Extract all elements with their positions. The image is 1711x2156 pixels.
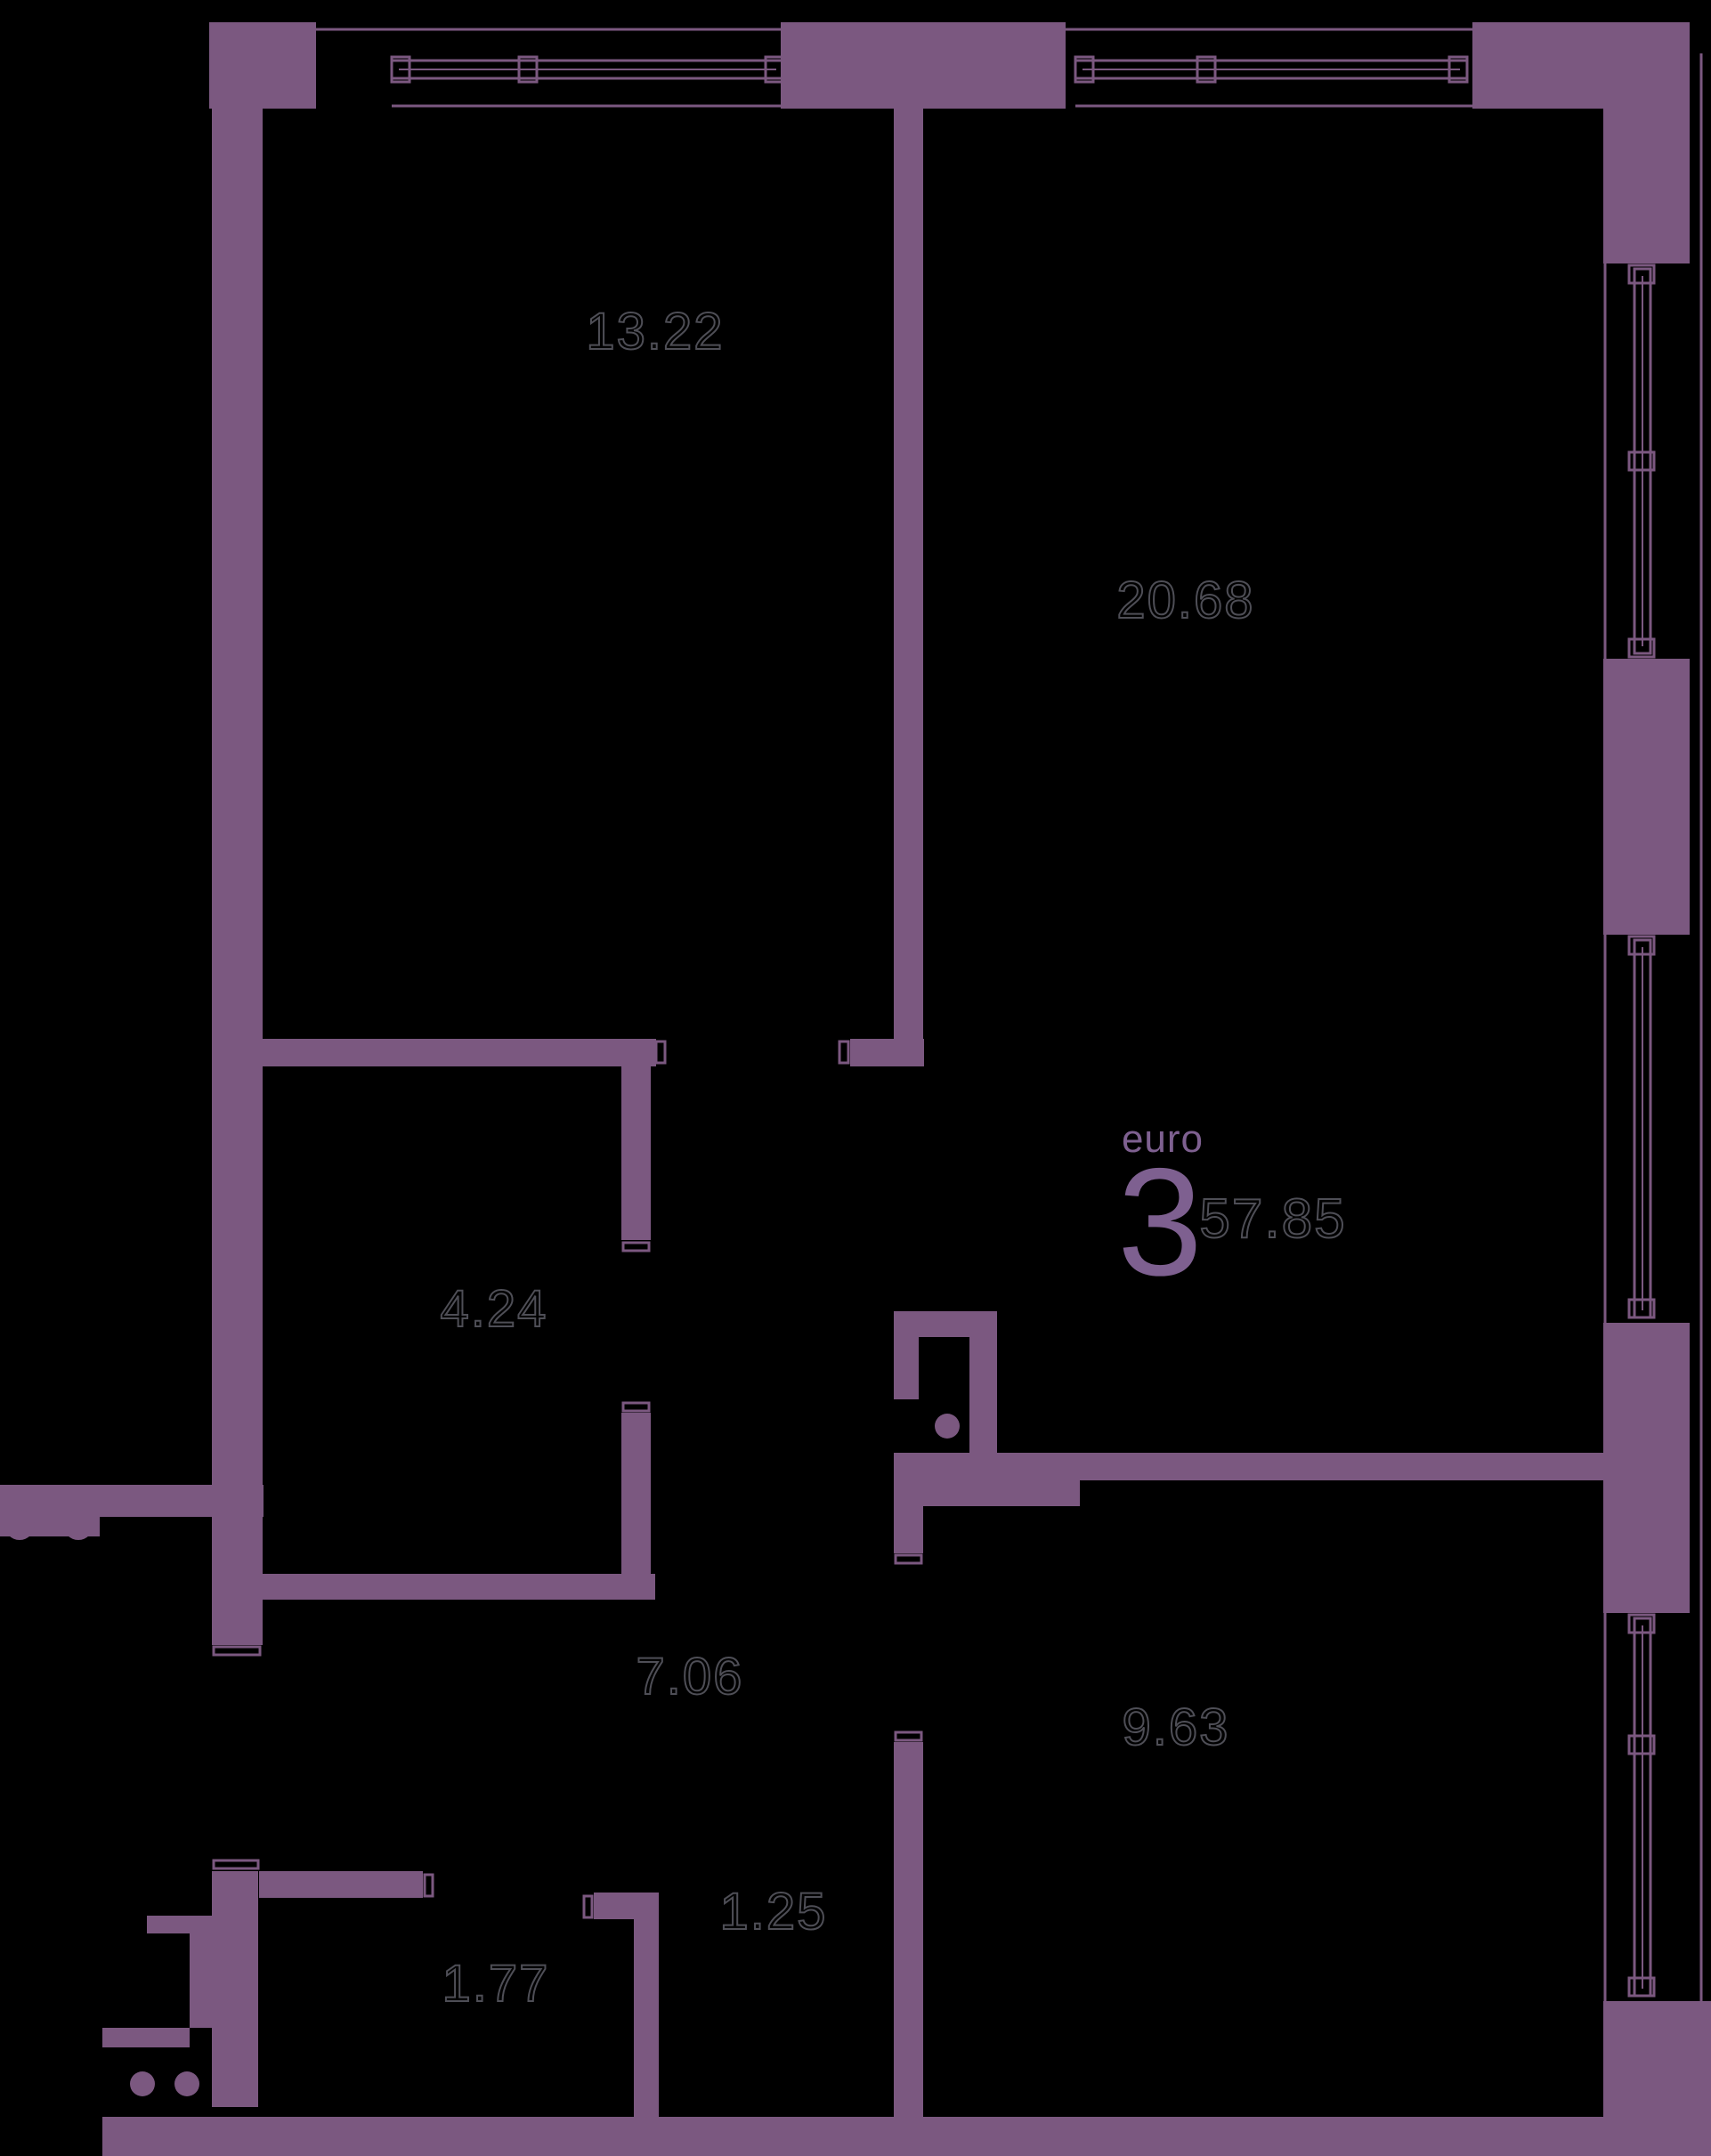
room-area-label-bathroom: 4.24 [441, 1280, 548, 1338]
wall-wardrobe-right [634, 1919, 659, 2117]
door-jamb [584, 1896, 592, 1917]
wall-hall-kitchen-lower [894, 1742, 923, 2117]
window-top-living [1066, 29, 1472, 106]
room-area-label-wardrobe: 1.77 [442, 1955, 550, 2013]
wall-segment [209, 22, 316, 109]
wall-wardrobe-top-left [259, 1871, 423, 1898]
wall-kitchen-niche-top [0, 1485, 264, 1517]
wall-living-kitchen-right [1080, 1453, 1603, 1480]
stove-burner-icon [63, 1510, 93, 1540]
wall-hall-kitchen-stub [894, 1506, 923, 1553]
counter-segment [102, 2028, 190, 2047]
door-openings [214, 1042, 921, 1917]
wall-wardrobe-top-right [594, 1893, 659, 1919]
stove-burner-icon [130, 2071, 155, 2096]
wall-segment-left-lower [212, 1871, 258, 2107]
door-jamb [839, 1042, 848, 1063]
door-jamb [896, 1555, 921, 1563]
toilet-icon [935, 1414, 960, 1439]
wall-pier-right [1603, 659, 1690, 935]
door-jamb [214, 1647, 260, 1655]
shaft-wall-right [969, 1337, 997, 1454]
window-right-lower [1605, 1613, 1654, 2001]
wall-segment-bottom [102, 2117, 1711, 2156]
window-right-middle [1605, 935, 1654, 1323]
wall-bathroom-right-lower [621, 1413, 651, 1600]
shaft-wall-top [894, 1311, 997, 1337]
wall-bedroom-hall [212, 1039, 656, 1066]
unit-total-area: 57.85 [1199, 1188, 1346, 1250]
floor-plan: 13.22 20.68 4.24 7.06 9.63 1.77 1.25 eur… [0, 0, 1711, 2156]
kitchen-fixtures [0, 1510, 214, 2096]
wall-pier-right [1603, 109, 1690, 263]
wall-living-kitchen-left [894, 1453, 1080, 1506]
room-area-label-bedroom: 13.22 [586, 303, 724, 361]
wall-segment [781, 22, 1066, 109]
door-jamb [656, 1042, 665, 1063]
wall-segment-left [212, 109, 263, 1645]
unit-badge: euro 3 57.85 [1117, 1117, 1346, 1308]
wall-segment [1472, 22, 1690, 109]
window-top-bedroom [316, 29, 783, 106]
wall-bedroom-hall-stub [850, 1039, 924, 1066]
shaft-block [894, 1311, 997, 1454]
door-jamb [623, 1243, 649, 1251]
door-jamb [896, 1732, 921, 1740]
stove-burner-icon [174, 2071, 199, 2096]
unit-room-count: 3 [1117, 1137, 1203, 1308]
shaft-wall-left [894, 1337, 919, 1399]
stove-burner-icon [4, 1510, 35, 1540]
wall-bathroom-bottom [259, 1574, 655, 1600]
wall-bedroom-living [894, 109, 923, 1066]
window-right-upper [1605, 263, 1654, 659]
door-jamb [425, 1875, 433, 1896]
door-jamb [623, 1403, 649, 1411]
counter-segment [190, 1916, 214, 2028]
floor-plan-page: 13.22 20.68 4.24 7.06 9.63 1.77 1.25 eur… [0, 0, 1711, 2156]
room-area-label-hallway: 7.06 [637, 1648, 744, 1706]
room-area-label-kitchen: 9.63 [1123, 1698, 1230, 1756]
room-area-label-living: 20.68 [1116, 571, 1254, 629]
room-area-label-niche: 1.25 [720, 1883, 828, 1941]
wall-bathroom-right-upper [621, 1043, 651, 1240]
wall-pier-right [1603, 1323, 1690, 1613]
door-jamb [214, 1860, 258, 1868]
